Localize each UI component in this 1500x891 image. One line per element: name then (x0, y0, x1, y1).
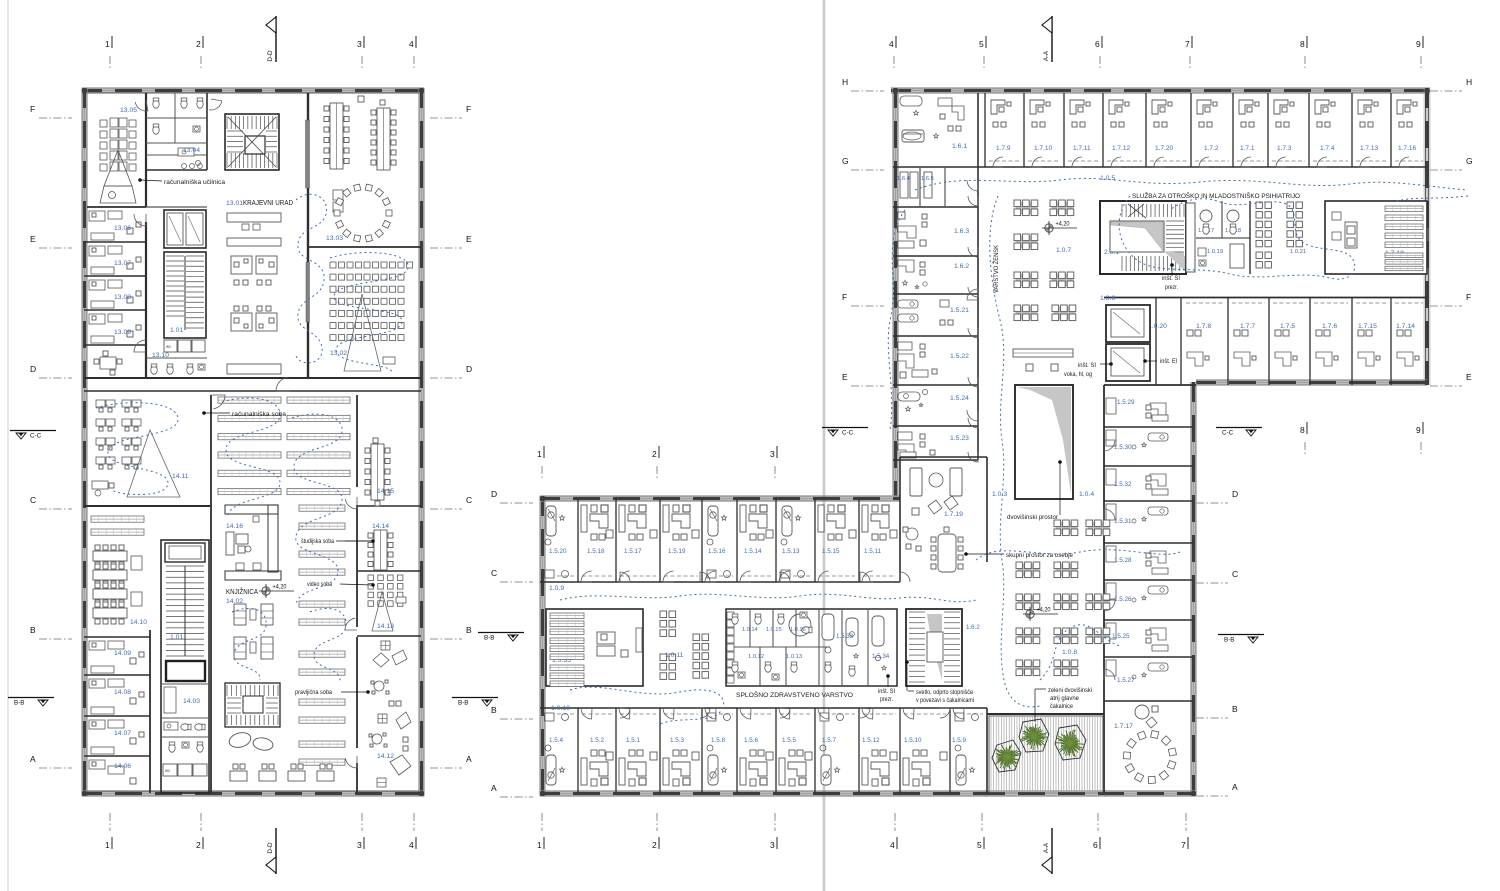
svg-text:4: 4 (409, 840, 414, 850)
svg-text:G: G (842, 156, 849, 166)
svg-text:1.5.30: 1.5.30 (1114, 444, 1132, 451)
svg-text:C-C: C-C (1222, 430, 1234, 437)
svg-text:H: H (1466, 77, 1472, 87)
svg-text:čakalnice: čakalnice (1050, 703, 1073, 710)
svg-text:1.0.5: 1.0.5 (1100, 175, 1115, 182)
svg-text:C-C: C-C (30, 433, 42, 440)
svg-text:4: 4 (890, 840, 895, 850)
svg-text:pravljična soba: pravljična soba (295, 689, 332, 696)
svg-text:9: 9 (1416, 425, 1421, 435)
svg-text:13.02: 13.02 (330, 350, 347, 357)
svg-text:1.5.12: 1.5.12 (862, 737, 880, 744)
svg-text:1.5.28: 1.5.28 (1114, 557, 1132, 564)
svg-text:G: G (1466, 156, 1473, 166)
svg-text:7: 7 (1181, 840, 1186, 850)
svg-text:14.03: 14.03 (183, 698, 200, 705)
svg-text:1.7.5: 1.7.5 (1280, 323, 1295, 330)
svg-text:7: 7 (1185, 39, 1190, 49)
svg-text:14.16: 14.16 (226, 523, 243, 530)
svg-text:1.5.24: 1.5.24 (950, 395, 969, 402)
svg-text:1.5.19: 1.5.19 (668, 548, 686, 555)
svg-text:B: B (1232, 704, 1238, 714)
svg-text:1.7.12: 1.7.12 (1112, 145, 1130, 152)
svg-text:svetlo, odprto stopnišče: svetlo, odprto stopnišče (916, 689, 973, 696)
svg-text:1.5.2: 1.5.2 (590, 737, 605, 744)
svg-text:inšt. El: inšt. El (1160, 358, 1177, 365)
svg-text:3: 3 (357, 840, 362, 850)
svg-text:1.7.7: 1.7.7 (1240, 323, 1255, 330)
svg-text:2: 2 (652, 840, 657, 850)
svg-text:1.7.15: 1.7.15 (1358, 323, 1377, 330)
svg-text:B: B (466, 625, 472, 635)
svg-text:D: D (491, 489, 497, 499)
svg-text:6: 6 (1095, 39, 1100, 49)
svg-text:1.7.20: 1.7.20 (1155, 145, 1173, 152)
svg-text:dvovišinski prostor: dvovišinski prostor (1007, 514, 1059, 521)
svg-text:1.0.19: 1.0.19 (1207, 249, 1223, 255)
svg-text:video soba: video soba (307, 581, 332, 588)
svg-text:1.7.2: 1.7.2 (1204, 145, 1219, 152)
svg-text:1.7.9: 1.7.9 (996, 145, 1011, 152)
svg-text:13.05: 13.05 (120, 107, 137, 114)
svg-text:F: F (30, 104, 35, 114)
svg-text:1.0.6: 1.0.6 (1100, 295, 1115, 302)
svg-text:1.5.9: 1.5.9 (952, 737, 967, 744)
svg-text:1.0.9: 1.0.9 (549, 585, 564, 592)
svg-text:wc: wc (166, 344, 171, 349)
svg-text:2: 2 (652, 449, 657, 459)
svg-text:prezr.: prezr. (1165, 284, 1178, 291)
svg-text:1.7.14: 1.7.14 (1396, 323, 1415, 330)
svg-text:1.0.10: 1.0.10 (551, 705, 570, 712)
svg-text:1.6.1: 1.6.1 (952, 143, 967, 150)
svg-text:A-A: A-A (1043, 50, 1050, 61)
svg-text:1.6.5: 1.6.5 (921, 176, 934, 182)
svg-text:D: D (466, 364, 472, 374)
svg-text:14.13: 14.13 (377, 623, 394, 630)
svg-text:+4,20: +4,20 (1056, 221, 1070, 228)
svg-text:9: 9 (1416, 39, 1421, 49)
svg-text:3: 3 (770, 449, 775, 459)
svg-text:1.7.1: 1.7.1 (1240, 145, 1255, 152)
svg-text:1.0.13: 1.0.13 (786, 654, 802, 660)
svg-text:5: 5 (977, 840, 982, 850)
svg-text:1.5.31: 1.5.31 (1114, 518, 1132, 525)
svg-text:3: 3 (770, 840, 775, 850)
svg-text:A: A (30, 754, 36, 764)
svg-text:C: C (491, 568, 497, 578)
svg-text:1: 1 (537, 840, 542, 850)
svg-text:14.06: 14.06 (114, 763, 131, 770)
svg-text:+4,20: +4,20 (1037, 607, 1051, 614)
svg-text:B: B (491, 705, 497, 715)
svg-text:računalniška soba: računalniška soba (232, 411, 286, 418)
svg-text:1.5.25: 1.5.25 (1112, 633, 1130, 640)
svg-text:1.5.34: 1.5.34 (872, 653, 890, 660)
svg-text:B-B: B-B (1224, 637, 1235, 644)
svg-text:1.5.32: 1.5.32 (1114, 481, 1132, 488)
svg-text:inšt. SI: inšt. SI (878, 688, 895, 695)
svg-text:1.5.16: 1.5.16 (708, 548, 726, 555)
svg-text:1.7.4: 1.7.4 (1320, 145, 1335, 152)
svg-text:1.0.3: 1.0.3 (992, 491, 1007, 498)
svg-text:6: 6 (1093, 840, 1098, 850)
svg-text:študijska soba: študijska soba (301, 538, 334, 545)
svg-text:E: E (842, 372, 848, 382)
svg-text:C: C (466, 495, 472, 505)
svg-text:D: D (1232, 489, 1238, 499)
svg-text:14.08: 14.08 (114, 689, 131, 696)
svg-text:1.5.17: 1.5.17 (624, 548, 642, 555)
svg-text:8: 8 (1300, 425, 1305, 435)
svg-text:14.10: 14.10 (130, 619, 147, 626)
svg-text:1.5.15: 1.5.15 (822, 548, 840, 555)
svg-text:inšt. SI: inšt. SI (1078, 362, 1096, 369)
svg-text:1.7.3: 1.7.3 (1277, 145, 1292, 152)
svg-text:1.5.3: 1.5.3 (670, 737, 685, 744)
svg-text:13.07: 13.07 (114, 260, 131, 267)
svg-text:1.5.6: 1.5.6 (744, 737, 759, 744)
svg-text:B-B: B-B (14, 700, 25, 707)
svg-text:voka, hl, og: voka, hl, og (1064, 371, 1092, 378)
svg-text:E: E (1466, 372, 1472, 382)
svg-text:4: 4 (889, 39, 894, 49)
svg-text:+4,20: +4,20 (273, 584, 287, 591)
svg-text:1.6.3: 1.6.3 (954, 228, 969, 235)
svg-text:1: 1 (105, 39, 110, 49)
svg-text:1.5.21: 1.5.21 (950, 307, 969, 314)
svg-text:zeleni dvovišinski: zeleni dvovišinski (1048, 687, 1092, 694)
svg-text:1.5.11: 1.5.11 (864, 548, 882, 555)
svg-text:1.5.13: 1.5.13 (782, 548, 800, 555)
svg-text:C-C: C-C (842, 430, 854, 437)
svg-text:14.15: 14.15 (377, 488, 394, 495)
svg-text:1.5.4: 1.5.4 (549, 737, 564, 744)
svg-text:2: 2 (196, 39, 201, 49)
svg-text:1.5.26: 1.5.26 (1114, 596, 1132, 603)
svg-text:13.03: 13.03 (326, 235, 343, 242)
svg-text:1.0.16: 1.0.16 (790, 627, 806, 633)
svg-text:inšt. SI: inšt. SI (1162, 275, 1180, 282)
svg-text:14.09: 14.09 (114, 650, 131, 657)
svg-text:14.07: 14.07 (114, 730, 131, 737)
svg-text:1.5.5: 1.5.5 (782, 737, 797, 744)
svg-text:A: A (466, 754, 472, 764)
svg-text:1.5.20: 1.5.20 (549, 548, 567, 555)
svg-text:A-A: A-A (1043, 842, 1050, 853)
svg-text:1.7.17: 1.7.17 (1114, 723, 1133, 730)
svg-text:1.0.11: 1.0.11 (665, 652, 684, 659)
svg-text:13.04: 13.04 (183, 147, 200, 154)
svg-text:14.14: 14.14 (372, 523, 389, 530)
svg-text:SPLOŠNO ZDRAVSTVENO VARSTVO: SPLOŠNO ZDRAVSTVENO VARSTVO (736, 690, 853, 699)
svg-text:C: C (30, 495, 36, 505)
svg-text:F: F (1466, 292, 1471, 302)
svg-text:prezr.: prezr. (880, 696, 893, 703)
svg-text:2: 2 (196, 840, 201, 850)
svg-text:1.5.18: 1.5.18 (587, 548, 605, 555)
svg-text:1.5.14: 1.5.14 (744, 548, 762, 555)
svg-text:1.0.12: 1.0.12 (748, 654, 764, 660)
svg-text:8: 8 (1300, 39, 1305, 49)
svg-text:1.0.4: 1.0.4 (1079, 491, 1094, 498)
svg-text:1.0.14: 1.0.14 (742, 627, 758, 633)
svg-text:13.01: 13.01 (226, 200, 243, 207)
svg-text:1.01: 1.01 (170, 634, 183, 641)
svg-text:B-B: B-B (484, 635, 495, 642)
svg-text:računalniška učilnica: računalniška učilnica (164, 179, 225, 186)
svg-text:B-B: B-B (458, 700, 469, 707)
svg-text:1.7.19: 1.7.19 (944, 511, 963, 518)
svg-text:A: A (491, 783, 497, 793)
svg-text:D-D: D-D (267, 50, 274, 62)
svg-text:wc: wc (165, 768, 170, 773)
svg-text:14.11: 14.11 (172, 473, 189, 480)
svg-text:13.09: 13.09 (114, 329, 131, 336)
svg-text:1.7.10: 1.7.10 (1034, 145, 1052, 152)
svg-text:E: E (30, 234, 36, 244)
svg-text:F: F (842, 292, 847, 302)
svg-text:14.12: 14.12 (377, 753, 394, 760)
svg-text:1.0.7: 1.0.7 (1056, 247, 1071, 254)
svg-text:1.7.6: 1.7.6 (1322, 323, 1337, 330)
svg-text:KRAJEVNI URAD: KRAJEVNI URAD (243, 200, 293, 207)
svg-text:4: 4 (409, 39, 414, 49)
svg-text:5: 5 (979, 39, 984, 49)
svg-text:1.5.1: 1.5.1 (626, 737, 641, 744)
svg-text:C: C (1232, 569, 1238, 579)
svg-text:1.5.10: 1.5.10 (904, 737, 922, 744)
svg-text:1.0.15: 1.0.15 (766, 627, 782, 633)
svg-text:3: 3 (357, 39, 362, 49)
svg-text:1.0.8: 1.0.8 (1062, 649, 1077, 656)
svg-text:1.5.27: 1.5.27 (1117, 677, 1135, 684)
svg-text:13.08: 13.08 (114, 294, 131, 301)
svg-text:1.6.2: 1.6.2 (966, 624, 980, 631)
svg-text:A: A (1232, 782, 1238, 792)
svg-text:SLUŽBA ZA OTROŠKO IN MLADOSTNI: SLUŽBA ZA OTROŠKO IN MLADOSTNIŠKO PSIHIA… (1132, 191, 1300, 200)
svg-text:1.6.4: 1.6.4 (897, 176, 911, 182)
svg-text:D-D: D-D (267, 842, 274, 854)
svg-text:E: E (466, 234, 472, 244)
svg-text:1.5.8: 1.5.8 (711, 737, 726, 744)
svg-text:1: 1 (537, 449, 542, 459)
svg-text:1.7.16: 1.7.16 (1398, 145, 1416, 152)
svg-text:B: B (30, 625, 36, 635)
svg-text:1.5.22: 1.5.22 (950, 353, 969, 360)
svg-text:VARSTVO ŽENSK: VARSTVO ŽENSK (991, 244, 1000, 293)
svg-text:KNJIŽNICA: KNJIŽNICA (226, 587, 258, 596)
svg-text:v povezavi s čakalnicami: v povezavi s čakalnicami (916, 697, 974, 704)
svg-text:1.7.11: 1.7.11 (1073, 145, 1091, 152)
svg-text:1.5.23: 1.5.23 (950, 435, 969, 442)
svg-text:1.01: 1.01 (170, 327, 183, 334)
svg-text:1: 1 (105, 840, 110, 850)
svg-text:1.0.21: 1.0.21 (1290, 249, 1306, 255)
svg-text:1.7.8: 1.7.8 (1196, 323, 1211, 330)
svg-text:1.5.29: 1.5.29 (1117, 399, 1135, 406)
svg-text:1.7.13: 1.7.13 (1360, 145, 1378, 152)
svg-text:1.5.7: 1.5.7 (822, 737, 837, 744)
svg-text:D: D (30, 364, 36, 374)
svg-text:F: F (466, 104, 471, 114)
svg-text:1.6.2: 1.6.2 (954, 263, 969, 270)
svg-text:1.5.33: 1.5.33 (836, 633, 854, 640)
svg-text:atrij glavne: atrij glavne (1050, 695, 1080, 702)
svg-text:H: H (842, 77, 848, 87)
svg-text:13.06: 13.06 (114, 225, 131, 232)
